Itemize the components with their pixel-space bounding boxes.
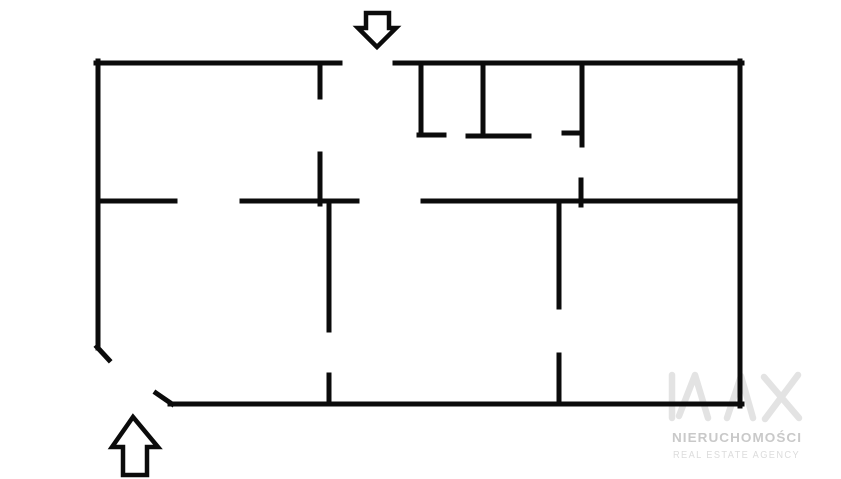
watermark: NIERUCHOMOŚCI REAL ESTATE AGENCY (672, 375, 802, 461)
nax-logo-stroke (679, 375, 708, 418)
nax-logo (672, 375, 799, 419)
entrance-arrow-up-icon (112, 417, 158, 475)
watermark-agency-name: NIERUCHOMOŚCI (672, 430, 802, 445)
wall-segment (97, 347, 109, 360)
floor-plan-image: NIERUCHOMOŚCI REAL ESTATE AGENCY (0, 0, 841, 479)
watermark-tagline: REAL ESTATE AGENCY (673, 450, 800, 461)
floor-plan-canvas: NIERUCHOMOŚCI REAL ESTATE AGENCY (0, 0, 841, 479)
walls-layer (96, 61, 742, 406)
entrance-arrow-down-icon (358, 13, 396, 47)
